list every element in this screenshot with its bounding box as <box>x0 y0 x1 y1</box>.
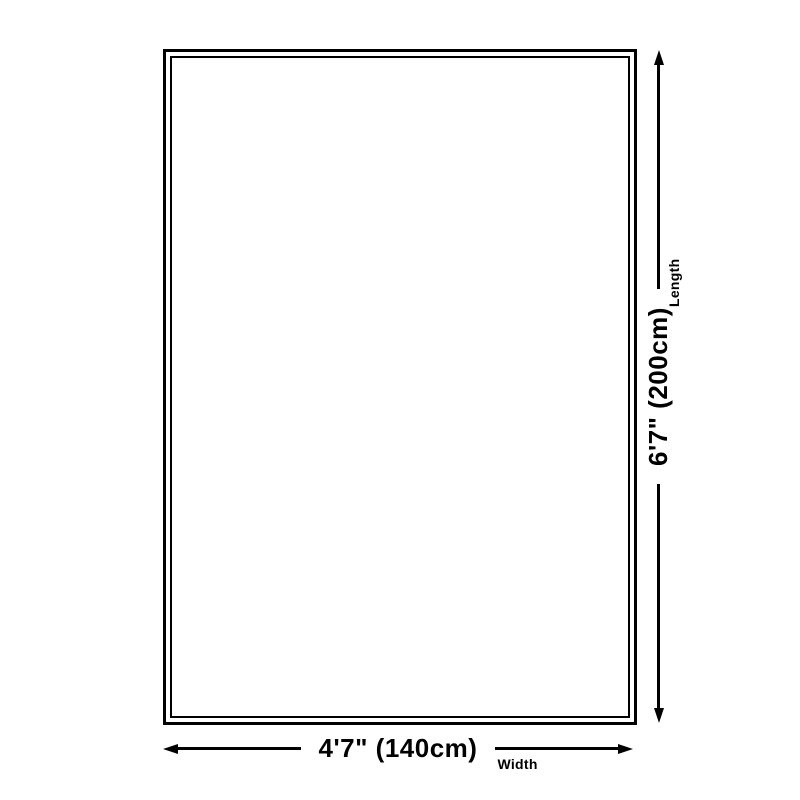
width-dimension-line-right: Width <box>495 747 618 750</box>
width-axis-label: Width <box>497 756 537 772</box>
length-dimension: 6'7" (200cm) Length <box>651 50 666 723</box>
arrow-right-icon <box>618 744 633 754</box>
width-size-label: 4'7" (140cm) <box>319 741 478 756</box>
width-dimension-line-left <box>178 747 301 750</box>
rug-outline <box>163 49 637 725</box>
width-dimension: 4'7" (140cm) Width <box>163 741 633 756</box>
length-dimension-line-top: Length <box>657 65 660 289</box>
arrow-down-icon <box>654 708 664 723</box>
arrow-left-icon <box>163 744 178 754</box>
length-axis-label: Length <box>666 259 682 307</box>
length-size-label: 6'7" (200cm) <box>651 307 666 466</box>
length-dimension-line-bottom <box>657 484 660 708</box>
arrow-up-icon <box>654 50 664 65</box>
size-diagram: 4'7" (140cm) Width 6'7" (200cm) Length <box>0 0 800 800</box>
rug-inner-border <box>170 56 630 718</box>
